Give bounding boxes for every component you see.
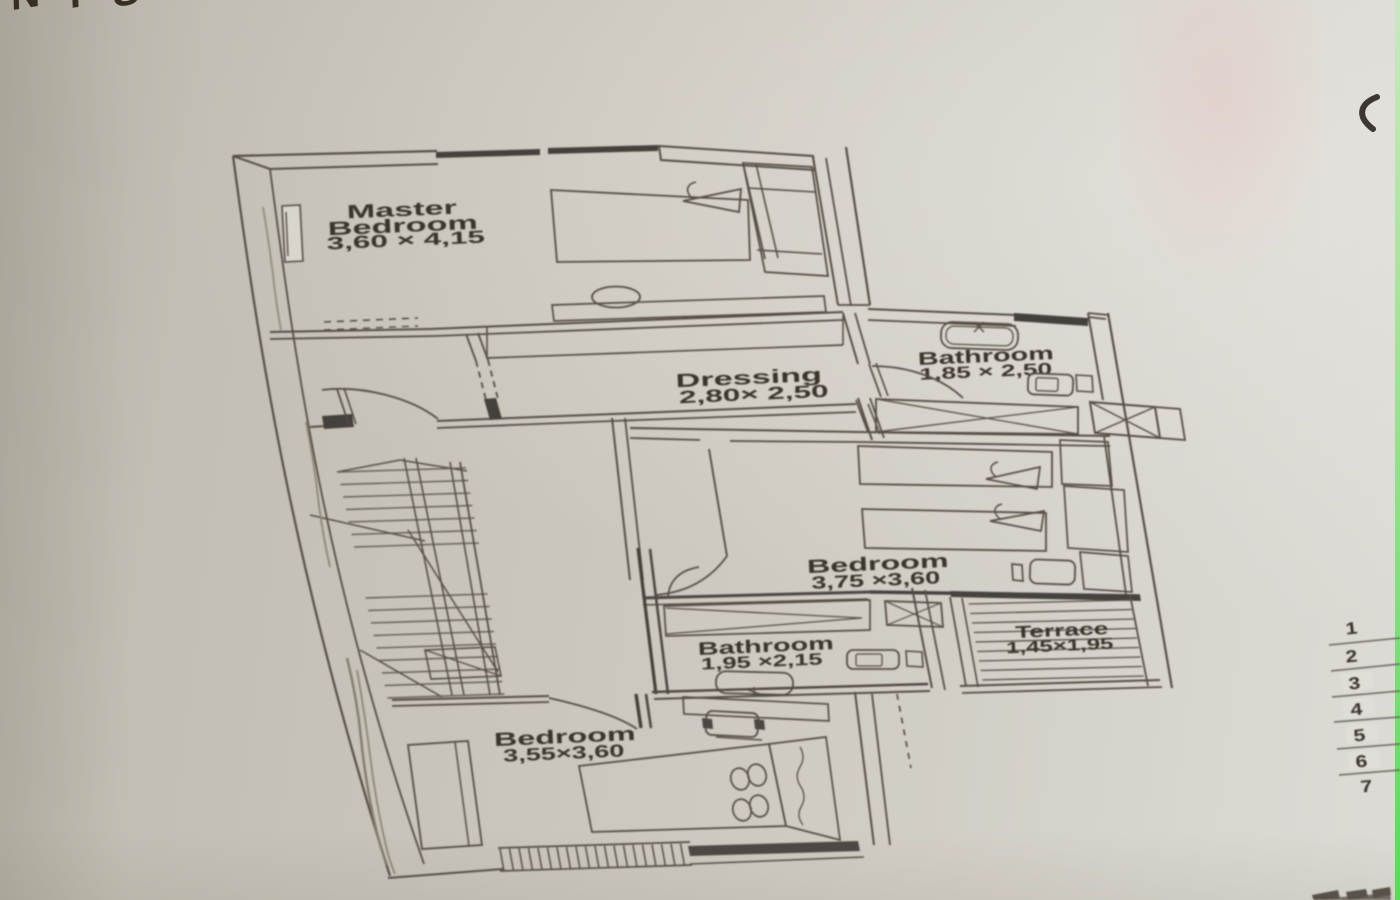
svg-text:7: 7 — [1360, 777, 1374, 797]
svg-text:2: 2 — [1345, 647, 1359, 667]
svg-text:3,55×3,60: 3,55×3,60 — [503, 740, 625, 765]
svg-text:3,75 ×3,60: 3,75 ×3,60 — [811, 567, 941, 593]
svg-text:1,45×1,95: 1,45×1,95 — [1006, 635, 1114, 657]
svg-text:1: 1 — [1345, 619, 1359, 639]
svg-text:4: 4 — [1350, 700, 1364, 720]
svg-text:5: 5 — [1353, 726, 1367, 746]
svg-text:6: 6 — [1355, 752, 1369, 772]
svg-text:3: 3 — [1348, 674, 1362, 694]
svg-text:1,95 ×2,15: 1,95 ×2,15 — [701, 650, 823, 674]
